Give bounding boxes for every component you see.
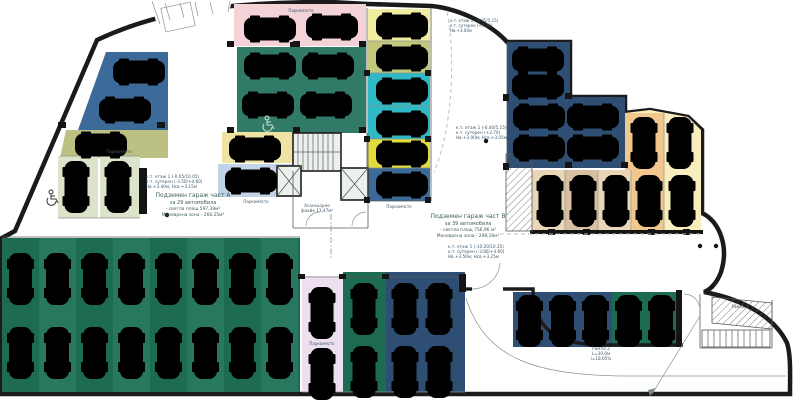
car	[44, 253, 71, 305]
door-arc	[306, 212, 320, 226]
car	[615, 295, 642, 347]
spot-label: Паркомясто	[309, 341, 335, 346]
car	[118, 253, 145, 305]
car	[669, 175, 696, 227]
car	[512, 73, 564, 100]
car	[63, 161, 90, 213]
car	[155, 253, 182, 305]
car	[105, 161, 132, 213]
car	[426, 346, 453, 398]
car	[244, 53, 296, 80]
car	[512, 47, 564, 74]
car	[376, 78, 428, 105]
garage-a-level-note: Нв.+3.40м; Нсв.+3.15м	[146, 184, 197, 189]
garage-a-area: - светла площ 597,39м²	[166, 206, 221, 212]
car	[192, 253, 219, 305]
ramp1-label: Рампа 1	[732, 304, 749, 309]
car	[376, 111, 428, 138]
car	[306, 14, 358, 41]
car	[44, 327, 71, 379]
right-level-note: Нв.+3.00м; Нсв.+3.05м	[456, 135, 507, 140]
car	[192, 327, 219, 379]
car	[113, 59, 165, 86]
wheelchair-icon	[47, 190, 58, 205]
car	[242, 92, 294, 119]
car	[309, 348, 336, 400]
garage-b-area: - светла площ 756,96 м²	[440, 227, 496, 233]
spot-label: Паркомясто	[106, 149, 132, 154]
car	[537, 175, 564, 227]
car	[376, 141, 428, 168]
car	[516, 295, 543, 347]
car	[155, 327, 182, 379]
car	[392, 346, 419, 398]
car	[7, 253, 34, 305]
car	[266, 327, 293, 379]
car	[244, 16, 296, 43]
spot-label: Паркомясто	[243, 199, 269, 204]
garage-a-maneuver: Маневрена зона - 266,25м²	[162, 212, 225, 218]
spot-label: Паркомясто	[288, 8, 314, 13]
car	[81, 327, 108, 379]
car	[549, 295, 576, 347]
car	[351, 346, 378, 398]
garage-b-maneuver: Маневрена зона - 298,16м²	[437, 233, 500, 239]
car	[426, 283, 453, 335]
top-level-note: Нв.+3.00м	[450, 28, 472, 33]
car	[229, 253, 256, 305]
stairs-bottom-right	[702, 330, 770, 347]
car	[376, 13, 428, 40]
garage-b-title: Подземен гараж част В	[431, 213, 506, 220]
car	[631, 117, 658, 169]
door-arc	[352, 212, 366, 226]
car	[99, 97, 151, 124]
car	[75, 132, 127, 159]
garage-b-level-note: Нв.+3.50м; Нсв.+3.25м	[448, 254, 499, 259]
car	[603, 175, 630, 227]
lobby-area: фоайе 13,47м²	[301, 208, 333, 213]
car	[513, 135, 565, 162]
car	[636, 175, 663, 227]
car	[118, 327, 145, 379]
spot-label: Паркомясто	[386, 204, 412, 209]
car	[392, 283, 419, 335]
car	[309, 287, 336, 339]
car	[648, 295, 675, 347]
car	[567, 135, 619, 162]
garage-b-subtitle: за 39 автомобила	[445, 221, 492, 227]
floor-plan-canvas: к.т. етаж 1 (-0.05/10.05) к.т. сутерен (…	[0, 0, 800, 400]
floor-plan: к.т. етаж 1 (-0.05/10.05) к.т. сутерен (…	[0, 0, 800, 400]
car	[667, 117, 694, 169]
car	[225, 168, 277, 195]
entrance-ramp	[150, 0, 232, 25]
garage-a-title: Подземен гараж част А	[156, 192, 232, 199]
car	[229, 136, 281, 163]
car	[81, 253, 108, 305]
car	[351, 283, 378, 335]
car	[266, 253, 293, 305]
car	[300, 92, 352, 119]
car	[582, 295, 609, 347]
car	[376, 172, 428, 199]
car	[513, 104, 565, 131]
car	[302, 53, 354, 80]
car	[7, 327, 34, 379]
car	[570, 175, 597, 227]
car	[376, 45, 428, 72]
car	[229, 327, 256, 379]
car	[567, 104, 619, 131]
garage-a-subtitle: за 29 автомобила	[170, 200, 217, 206]
ramp2-slope: i=18.05%	[591, 356, 612, 361]
